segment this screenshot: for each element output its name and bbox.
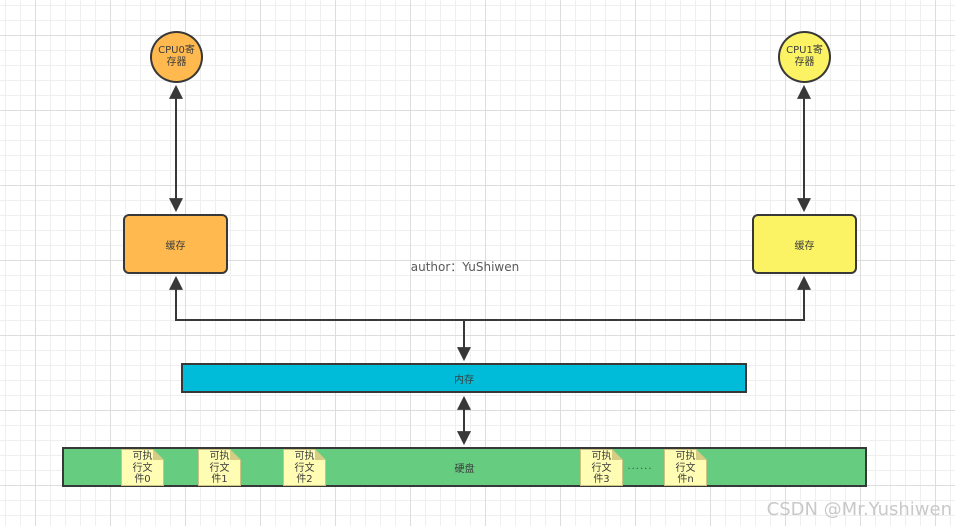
diagram-canvas: CPU0寄存器 CPU1寄存器 缓存 缓存 author：YuShiwen 内存…: [0, 0, 955, 526]
disk-files-ellipsis: ......: [618, 461, 662, 472]
connector-layer: [0, 0, 955, 526]
executable-file-note-n: 可执行文件n: [664, 449, 707, 486]
executable-file-note-2: 可执行文件2: [283, 449, 326, 486]
cache-right-memory-connector: [464, 278, 804, 320]
executable-file-note-3: 可执行文件3: [580, 449, 623, 486]
cache-left-memory-connector: [176, 278, 464, 359]
executable-file-note-1: 可执行文件1: [198, 449, 241, 486]
executable-file-note-0: 可执行文件0: [121, 449, 164, 486]
